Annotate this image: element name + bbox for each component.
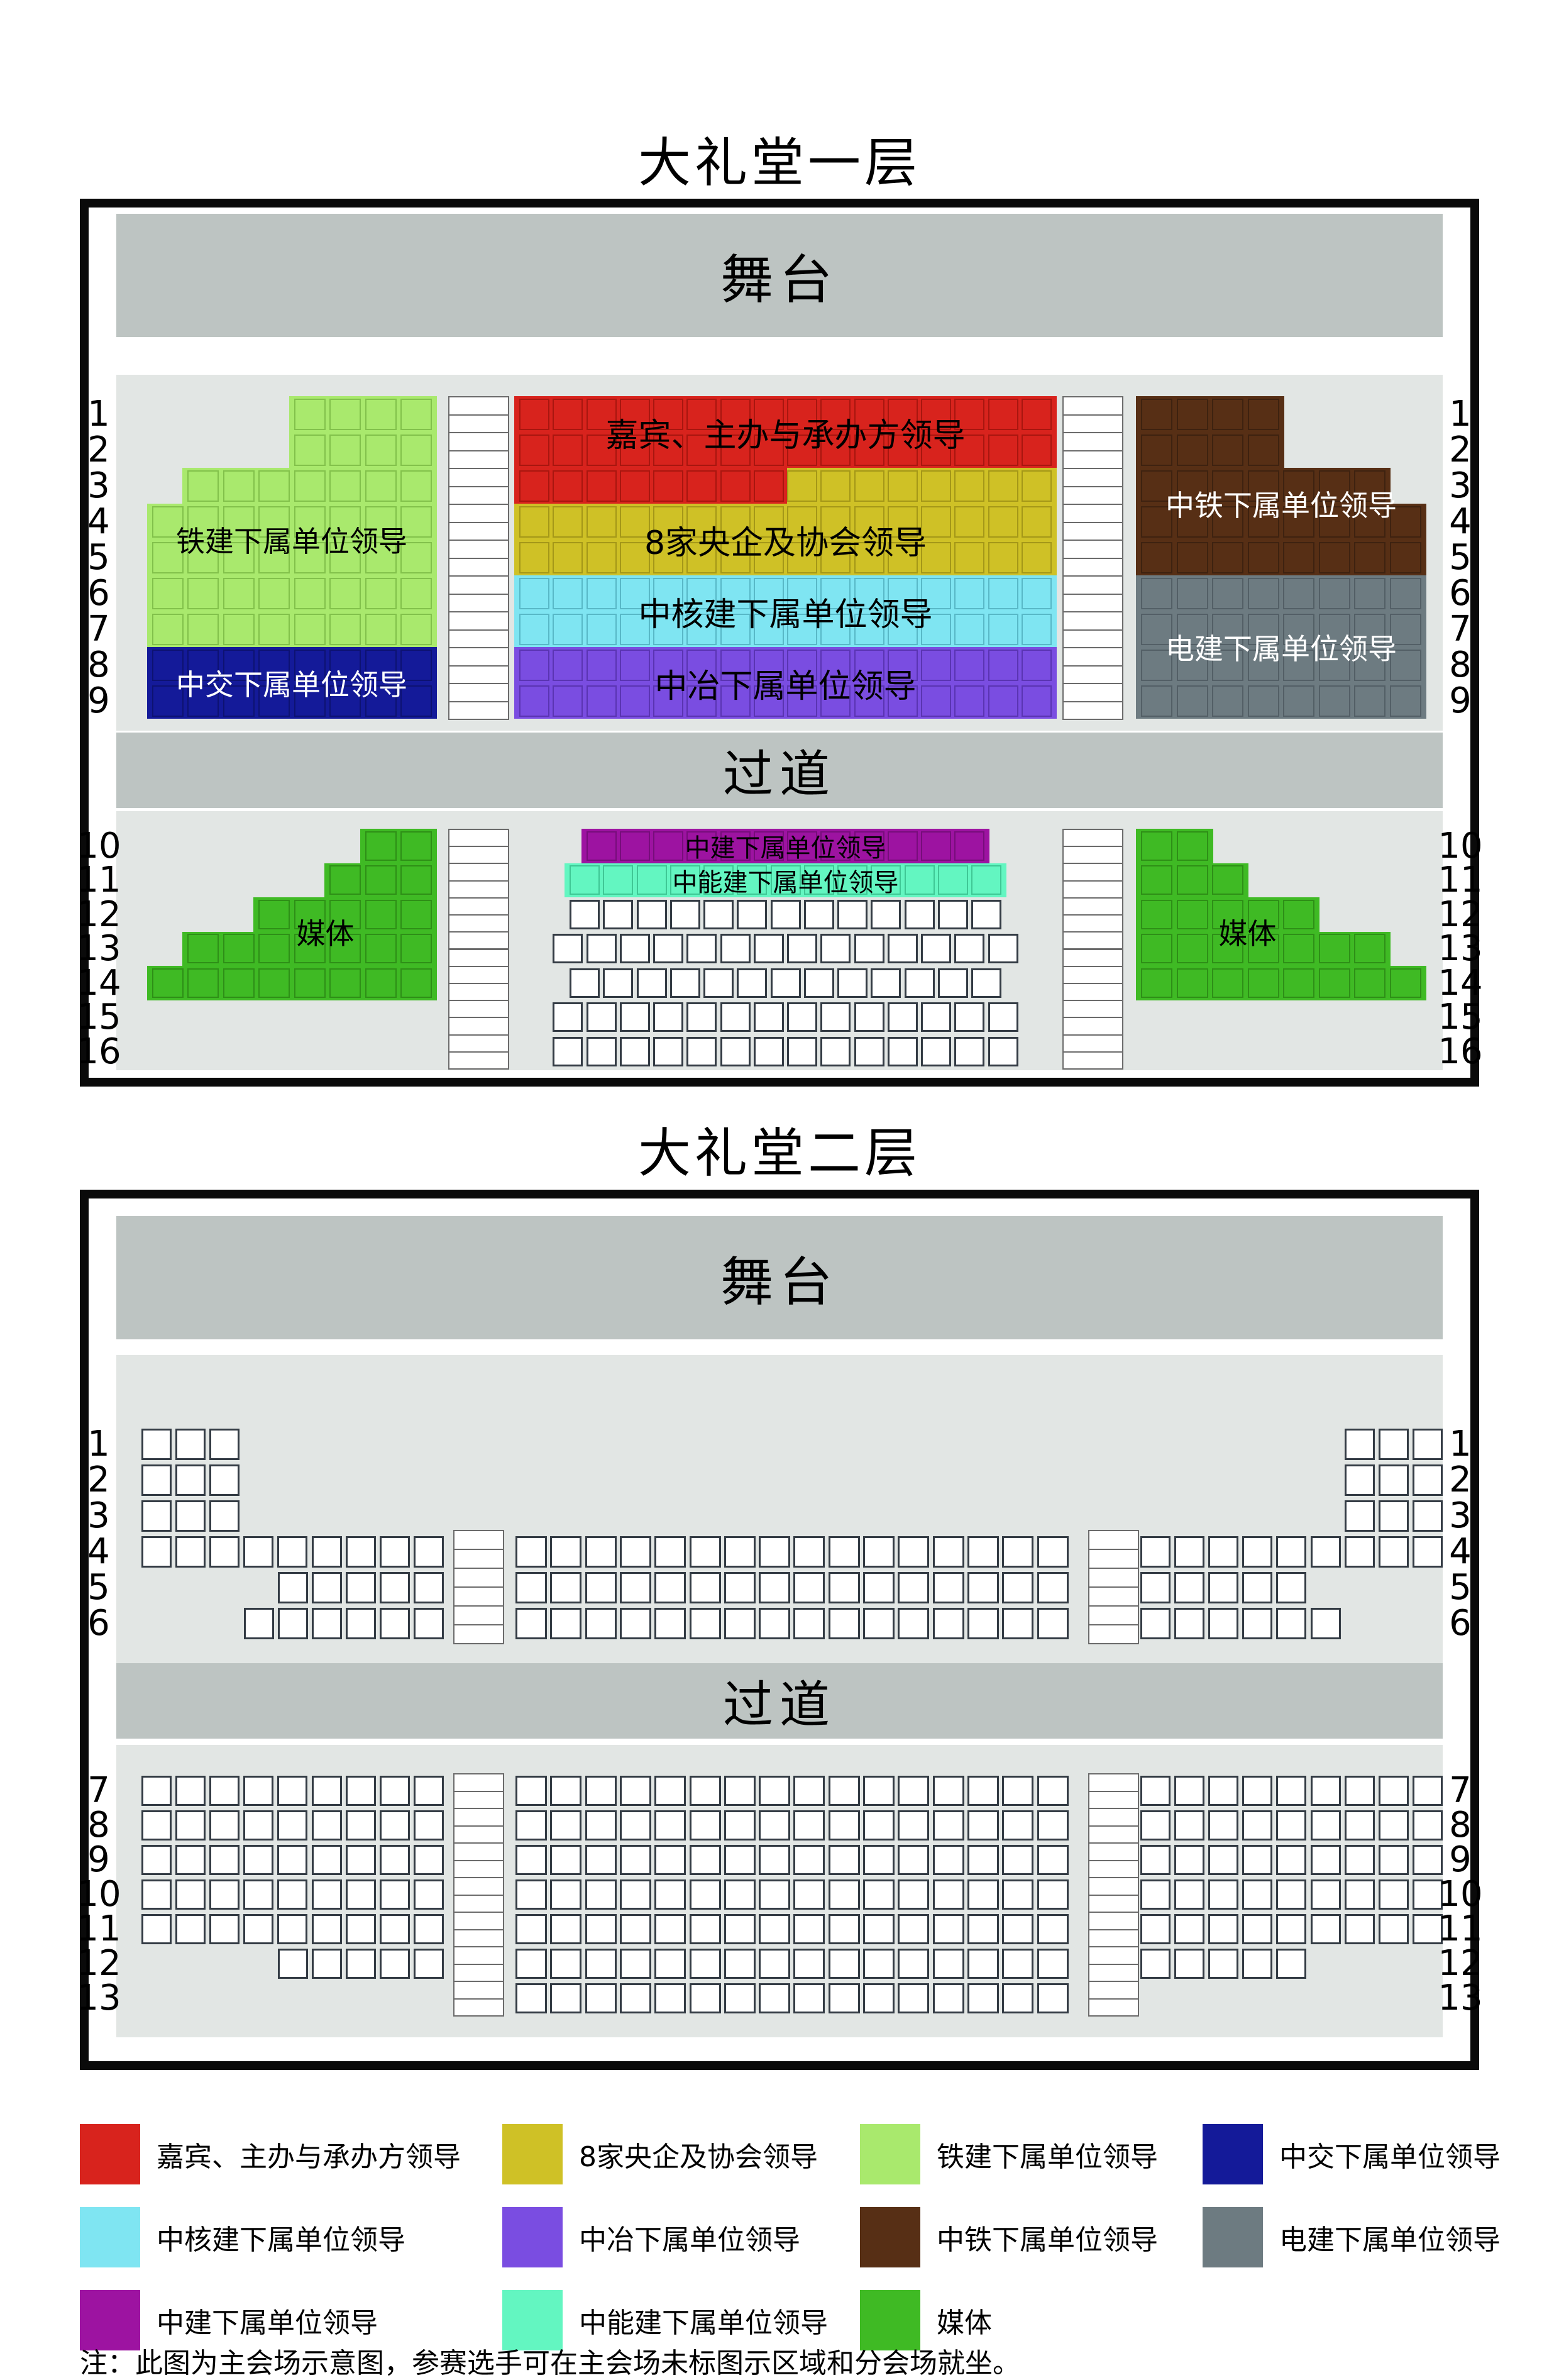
row-number-left: 6 xyxy=(70,575,127,611)
seat xyxy=(905,900,935,929)
aisle-seat xyxy=(1088,1877,1139,1896)
seat xyxy=(654,1845,686,1875)
seat xyxy=(1177,542,1208,573)
seat xyxy=(1208,1949,1238,1979)
seat xyxy=(1002,1949,1033,1979)
seat xyxy=(346,1879,376,1910)
legend-swatch-dianjian xyxy=(1203,2207,1263,2267)
seat xyxy=(1379,1845,1409,1875)
seat xyxy=(365,614,397,645)
seat xyxy=(585,1845,617,1875)
seat xyxy=(380,1914,410,1944)
aisle-seat xyxy=(1062,486,1123,506)
seat xyxy=(277,1810,307,1840)
seat xyxy=(515,1879,547,1910)
seat xyxy=(620,1776,651,1806)
seat xyxy=(141,1776,172,1806)
aisle-seat xyxy=(448,594,509,613)
seat xyxy=(1208,1845,1238,1875)
seat xyxy=(1141,865,1172,895)
row-number-left: 10 xyxy=(70,829,127,863)
row-number-left: 12 xyxy=(70,897,127,932)
seat xyxy=(1208,1536,1238,1568)
seat xyxy=(620,1879,651,1910)
seat xyxy=(1212,542,1243,573)
seat xyxy=(854,1002,884,1032)
seat xyxy=(686,1002,717,1032)
seat xyxy=(654,1914,686,1944)
seat xyxy=(724,1572,756,1603)
seat xyxy=(258,614,290,645)
row-number-left: 3 xyxy=(70,1498,127,1534)
seat xyxy=(888,470,918,502)
seat xyxy=(804,968,834,998)
seat xyxy=(223,614,255,645)
seat xyxy=(863,1879,895,1910)
seat xyxy=(1208,1914,1238,1944)
seat xyxy=(954,1002,984,1032)
seat xyxy=(414,1572,444,1603)
seat xyxy=(414,1776,444,1806)
seat xyxy=(1141,968,1172,998)
aisle-seat xyxy=(453,1842,504,1861)
section-label: 嘉宾、主办与承办方领导 xyxy=(519,396,1052,468)
row-number-right: 11 xyxy=(1432,1912,1489,1946)
aisle-seat xyxy=(1088,1981,1139,2000)
seat xyxy=(400,831,432,861)
seat xyxy=(690,1536,721,1568)
seat xyxy=(515,1914,547,1944)
seat xyxy=(187,578,219,609)
aisle-seat xyxy=(448,1034,509,1053)
seat xyxy=(175,1810,206,1840)
seat xyxy=(243,1810,273,1840)
legend-label: 中冶下属单位领导 xyxy=(579,2207,800,2267)
aisle-seat xyxy=(1062,414,1123,434)
seat xyxy=(329,865,361,895)
seat xyxy=(737,900,767,929)
seat xyxy=(312,1608,342,1639)
seat xyxy=(329,614,361,645)
aisle-seat xyxy=(1062,880,1123,899)
seat xyxy=(1283,578,1314,609)
seat xyxy=(988,1037,1018,1066)
seat xyxy=(1345,1776,1375,1806)
aisle-seat xyxy=(1088,1624,1139,1644)
seat xyxy=(793,1949,825,1979)
legend-label: 中铁下属单位领导 xyxy=(937,2207,1158,2267)
seat xyxy=(933,1608,964,1639)
seat xyxy=(329,968,361,998)
aisle-seat xyxy=(1062,683,1123,702)
seat xyxy=(1208,1608,1238,1639)
seat xyxy=(346,1776,376,1806)
seat xyxy=(400,470,432,502)
seat xyxy=(175,1776,206,1806)
floor1-lower-center-block: 中建下属单位领导中能建下属单位领导 xyxy=(519,829,1052,1069)
aisle-seat xyxy=(448,665,509,685)
seat xyxy=(187,614,219,645)
seat xyxy=(898,1845,929,1875)
seat xyxy=(400,578,432,609)
aisle-seat xyxy=(1062,594,1123,613)
seat xyxy=(515,1572,547,1603)
seat xyxy=(1276,1536,1306,1568)
legend-item: 电建下属单位领导 xyxy=(1203,2207,1559,2267)
seat xyxy=(1212,578,1243,609)
seat xyxy=(1319,542,1350,573)
aisle-seat xyxy=(453,1912,504,1930)
seat xyxy=(1311,1776,1341,1806)
seat xyxy=(988,470,1018,502)
seat xyxy=(312,1914,342,1944)
seat xyxy=(570,968,600,998)
aisle-seat xyxy=(448,486,509,506)
seat xyxy=(793,1845,825,1875)
row-number-left: 6 xyxy=(70,1605,127,1641)
seat xyxy=(1037,1983,1069,2013)
seat xyxy=(1276,1572,1306,1603)
seat xyxy=(414,1536,444,1568)
aisle-seat xyxy=(453,1860,504,1879)
seat xyxy=(550,1536,581,1568)
section-label: 中冶下属单位领导 xyxy=(519,647,1052,719)
seat xyxy=(724,1949,756,1979)
aisle-seat xyxy=(1062,522,1123,541)
aisle-seat xyxy=(448,450,509,470)
seat xyxy=(1037,1845,1069,1875)
seat xyxy=(1276,1608,1306,1639)
seat xyxy=(1276,1879,1306,1910)
aisle-seat xyxy=(1062,647,1123,667)
seat xyxy=(1390,542,1421,573)
floor2-right-wing-upper xyxy=(1140,1426,1443,1641)
seat xyxy=(414,1845,444,1875)
seat xyxy=(933,1810,964,1840)
row-number-right: 2 xyxy=(1432,1462,1489,1498)
seat xyxy=(152,578,184,609)
seat xyxy=(759,1949,790,1979)
seat xyxy=(967,1810,999,1840)
aisle-seat xyxy=(1062,396,1123,416)
seat xyxy=(690,1914,721,1944)
aisle-seat xyxy=(1062,468,1123,487)
seat xyxy=(1242,1949,1272,1979)
seat xyxy=(346,1572,376,1603)
seat xyxy=(686,1037,717,1066)
seat xyxy=(585,1914,617,1944)
legend-swatch-yangqi xyxy=(502,2124,563,2184)
seat xyxy=(1345,1810,1375,1840)
row-number-left: 8 xyxy=(70,647,127,683)
seat xyxy=(854,934,884,963)
seat xyxy=(365,865,397,895)
seat xyxy=(585,1536,617,1568)
seat xyxy=(863,1983,895,2013)
seat xyxy=(1140,1914,1171,1944)
aisle-seat xyxy=(453,1530,504,1550)
aisle-seat xyxy=(1062,1034,1123,1053)
seat xyxy=(515,1983,547,2013)
seat xyxy=(380,1776,410,1806)
seat xyxy=(1141,578,1172,609)
floor1-media-left-block: 媒体 xyxy=(151,829,432,1000)
row-number-left: 5 xyxy=(70,1569,127,1605)
seat xyxy=(759,1776,790,1806)
aisle-seat xyxy=(1088,1998,1139,2017)
seat xyxy=(820,1037,851,1066)
seat xyxy=(759,1983,790,2013)
seat xyxy=(1037,1879,1069,1910)
seat xyxy=(1141,434,1172,466)
seat xyxy=(654,1572,686,1603)
seat xyxy=(550,1572,581,1603)
seat xyxy=(938,968,968,998)
seat xyxy=(515,1608,547,1639)
aisle-seat xyxy=(448,914,509,933)
seat xyxy=(585,1810,617,1840)
aisle-seat xyxy=(1088,1842,1139,1861)
seat xyxy=(967,1914,999,1944)
floor2-left-wing-upper xyxy=(141,1426,444,1641)
aisle-seat xyxy=(448,558,509,577)
seat xyxy=(278,1572,308,1603)
seat xyxy=(346,1608,376,1639)
seat xyxy=(829,1536,860,1568)
legend-swatch-tiejian xyxy=(860,2124,920,2184)
seat xyxy=(277,1776,307,1806)
seat xyxy=(553,934,583,963)
seat xyxy=(759,1810,790,1840)
seat xyxy=(829,1845,860,1875)
row-number-right: 7 xyxy=(1432,1773,1489,1808)
seat xyxy=(829,1608,860,1639)
seat xyxy=(277,1914,307,1944)
row-number-right: 10 xyxy=(1432,1877,1489,1912)
seat xyxy=(1379,1879,1409,1910)
aisle-seat xyxy=(448,683,509,702)
section-label: 电建下属单位领导 xyxy=(1141,611,1421,683)
row-number-left: 12 xyxy=(70,1946,127,1981)
seat xyxy=(888,1002,918,1032)
seat xyxy=(1037,1949,1069,1979)
aisle-seat xyxy=(448,1017,509,1035)
seat xyxy=(1174,1608,1204,1639)
aisle-seat xyxy=(1062,629,1123,649)
seat xyxy=(921,1037,951,1066)
aisle-seat xyxy=(1088,1825,1139,1844)
section-label: 中铁下属单位领导 xyxy=(1141,468,1421,540)
seat xyxy=(793,1608,825,1639)
row-number-right: 5 xyxy=(1432,540,1489,575)
seat xyxy=(550,1810,581,1840)
footnote: 注：此图为主会场示意图，参赛选手可在主会场未标图示区域和分会场就坐。 xyxy=(80,2340,1020,2380)
seat xyxy=(515,1949,547,1979)
seat xyxy=(888,934,918,963)
seat xyxy=(829,1810,860,1840)
seat xyxy=(898,1810,929,1840)
seat xyxy=(294,968,326,998)
seat xyxy=(175,1536,206,1568)
seat xyxy=(653,1037,683,1066)
seat xyxy=(1345,1536,1375,1568)
seat xyxy=(863,1810,895,1840)
seat xyxy=(141,1464,172,1496)
aisle-seat xyxy=(448,396,509,416)
aisle-seat xyxy=(448,931,509,949)
seat xyxy=(312,1776,342,1806)
seat xyxy=(724,1879,756,1910)
seat xyxy=(967,1983,999,2013)
seat xyxy=(967,1536,999,1568)
seat xyxy=(653,934,683,963)
seat xyxy=(1177,685,1208,717)
seat xyxy=(898,1608,929,1639)
seat xyxy=(871,900,901,929)
seat xyxy=(329,578,361,609)
seat xyxy=(585,1983,617,2013)
seat xyxy=(414,1879,444,1910)
seat xyxy=(793,1536,825,1568)
seat xyxy=(1208,1776,1238,1806)
row-number-left: 4 xyxy=(70,504,127,540)
seat xyxy=(380,1949,410,1979)
aisle-seat xyxy=(453,1929,504,1948)
row-number-right: 13 xyxy=(1432,1981,1489,2015)
seat xyxy=(515,1845,547,1875)
seat xyxy=(1248,685,1279,717)
floor2-left-aisle-seats-lower xyxy=(453,1773,504,2015)
section-label: 8家央企及协会领导 xyxy=(519,504,1052,575)
row-number-left: 3 xyxy=(70,468,127,504)
seat xyxy=(1174,1572,1204,1603)
floor2-aisle-band: 过道 xyxy=(116,1663,1443,1739)
seat xyxy=(1319,578,1350,609)
row-number-right: 11 xyxy=(1432,863,1489,898)
seat xyxy=(365,968,397,998)
aisle-seat xyxy=(1062,540,1123,559)
seat xyxy=(1140,1608,1171,1639)
seat xyxy=(278,1608,308,1639)
seat xyxy=(703,968,734,998)
aisle-seat xyxy=(1062,966,1123,984)
seat xyxy=(793,1776,825,1806)
seat xyxy=(829,1983,860,2013)
seat xyxy=(515,1536,547,1568)
aisle-seat xyxy=(1062,863,1123,881)
row-number-right: 1 xyxy=(1432,1426,1489,1462)
aisle-seat xyxy=(453,1981,504,2000)
seat xyxy=(933,1914,964,1944)
seat xyxy=(720,934,751,963)
seat xyxy=(690,1608,721,1639)
legend-item: 中核建下属单位领导 xyxy=(80,2207,495,2267)
seat xyxy=(414,1810,444,1840)
seat xyxy=(690,1845,721,1875)
seat xyxy=(829,1776,860,1806)
seat xyxy=(1037,1608,1069,1639)
legend-item: 中冶下属单位领导 xyxy=(502,2207,917,2267)
seat xyxy=(553,1002,583,1032)
seat xyxy=(1037,1776,1069,1806)
aisle-seat xyxy=(448,897,509,916)
seat xyxy=(175,1914,206,1944)
seat xyxy=(223,578,255,609)
seat xyxy=(1345,1879,1375,1910)
seat xyxy=(933,1776,964,1806)
seat xyxy=(258,578,290,609)
aisle-seat xyxy=(1062,829,1123,847)
floor1-left-aisle-seats-lower xyxy=(448,829,509,1068)
aisle-seat xyxy=(448,647,509,667)
seat xyxy=(1354,968,1385,998)
aisle-seat xyxy=(1062,1017,1123,1035)
seat xyxy=(1002,1914,1033,1944)
row-number-left: 1 xyxy=(70,1426,127,1462)
seat xyxy=(258,968,290,998)
seat xyxy=(244,1608,274,1639)
seat xyxy=(380,1536,410,1568)
seat xyxy=(587,470,617,502)
seat xyxy=(1379,1536,1409,1568)
section-label: 中核建下属单位领导 xyxy=(519,575,1052,647)
seat xyxy=(603,900,633,929)
aisle-seat xyxy=(1062,432,1123,451)
seat xyxy=(294,614,326,645)
floor1-left-aisle-seats xyxy=(448,396,509,719)
aisle-seat xyxy=(448,432,509,451)
seat xyxy=(187,968,219,998)
seat xyxy=(654,1536,686,1568)
seat xyxy=(724,1608,756,1639)
aisle-seat xyxy=(453,1964,504,1983)
row-number-left: 5 xyxy=(70,540,127,575)
seat xyxy=(141,1845,172,1875)
seat xyxy=(954,1037,984,1066)
seat xyxy=(346,1949,376,1979)
seat xyxy=(854,1037,884,1066)
seat xyxy=(1390,968,1421,998)
seat xyxy=(258,470,290,502)
seat xyxy=(1140,1776,1171,1806)
seat xyxy=(620,1536,651,1568)
floor1-zhongtie-dianjian-block: 中铁下属单位领导电建下属单位领导 xyxy=(1141,396,1421,719)
seat xyxy=(1177,578,1208,609)
seat xyxy=(175,1429,206,1460)
seat xyxy=(519,470,549,502)
seat xyxy=(1002,1810,1033,1840)
seat xyxy=(1311,1810,1341,1840)
seat xyxy=(1345,1429,1375,1460)
seat xyxy=(1022,470,1052,502)
row-number-right: 12 xyxy=(1432,897,1489,932)
seat xyxy=(898,1572,929,1603)
seat xyxy=(620,1914,651,1944)
seat xyxy=(737,968,767,998)
seat xyxy=(346,1845,376,1875)
seat xyxy=(400,968,432,998)
aisle-seat xyxy=(448,1000,509,1018)
seat xyxy=(787,934,817,963)
floor1-media-right-block: 媒体 xyxy=(1141,829,1421,1000)
aisle-seat xyxy=(1062,949,1123,967)
row-number-right: 6 xyxy=(1432,575,1489,611)
aisle-seat xyxy=(1062,504,1123,523)
seat xyxy=(1276,1914,1306,1944)
seat xyxy=(898,1879,929,1910)
seat xyxy=(1379,1810,1409,1840)
legend-label: 中核建下属单位领导 xyxy=(157,2207,405,2267)
